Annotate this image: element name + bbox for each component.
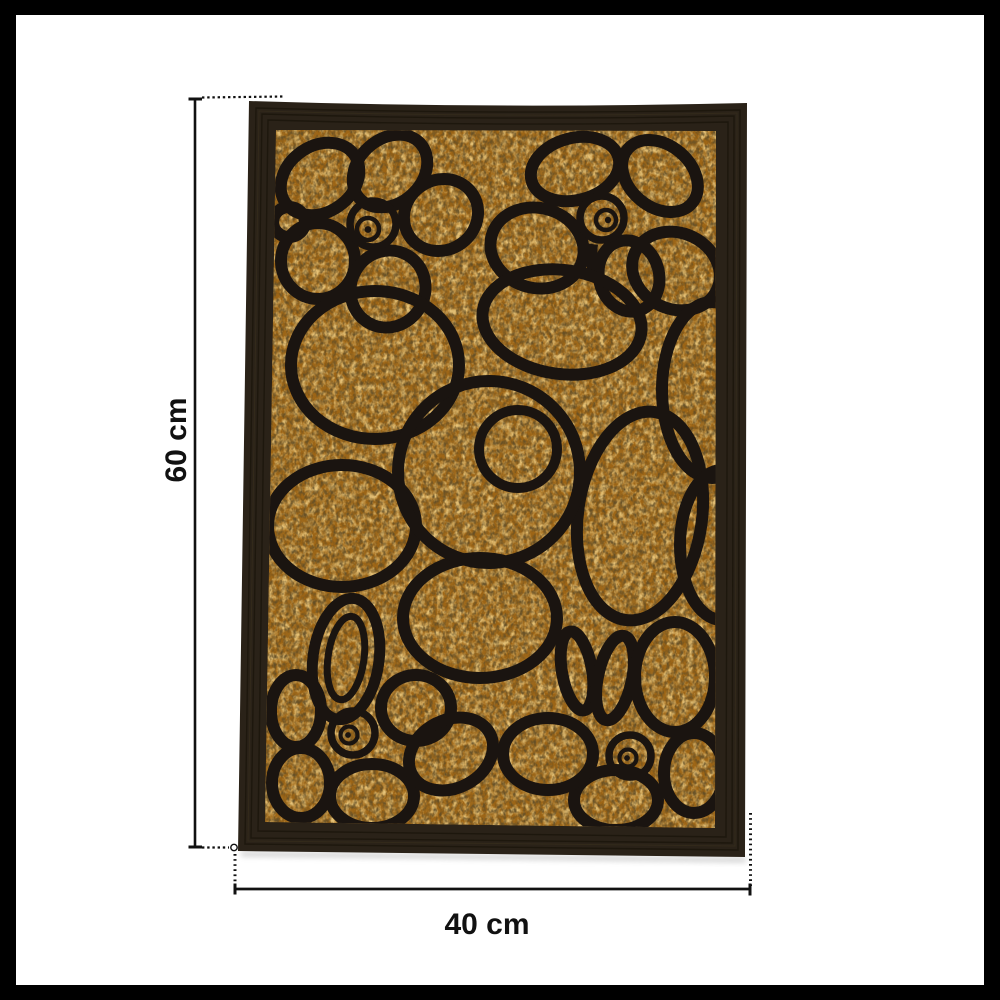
svg-text:40 cm: 40 cm: [444, 908, 529, 941]
svg-text:60 cm: 60 cm: [160, 397, 193, 482]
